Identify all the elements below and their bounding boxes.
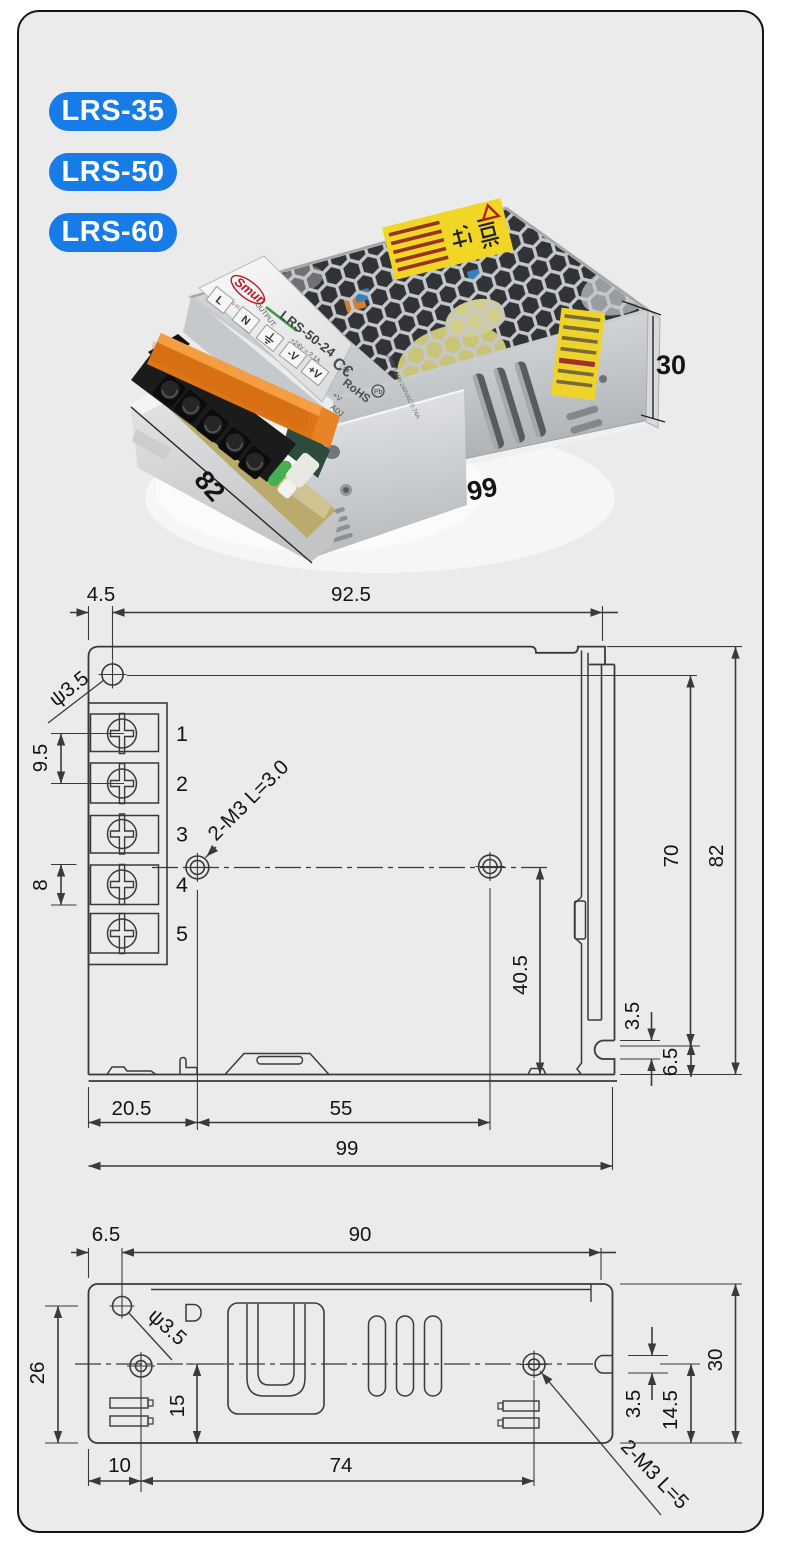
svg-text:20.5: 20.5 bbox=[112, 1097, 152, 1120]
svg-text:5: 5 bbox=[176, 922, 188, 946]
svg-text:74: 74 bbox=[330, 1454, 353, 1477]
svg-text:99: 99 bbox=[465, 472, 500, 507]
svg-text:10: 10 bbox=[108, 1454, 131, 1477]
svg-text:4: 4 bbox=[176, 873, 188, 897]
svg-text:4.5: 4.5 bbox=[87, 583, 116, 606]
svg-text:9.5: 9.5 bbox=[29, 744, 52, 773]
svg-text:ψ3.5: ψ3.5 bbox=[144, 1304, 191, 1350]
svg-text:1: 1 bbox=[176, 722, 188, 746]
svg-text:2-M3 L=3.0: 2-M3 L=3.0 bbox=[203, 755, 293, 845]
svg-text:15: 15 bbox=[166, 1395, 189, 1418]
svg-text:Pb: Pb bbox=[374, 389, 383, 396]
svg-text:82: 82 bbox=[705, 845, 728, 868]
svg-text:99: 99 bbox=[336, 1137, 359, 1160]
svg-text:90: 90 bbox=[349, 1223, 372, 1246]
svg-text:14.5: 14.5 bbox=[659, 1390, 682, 1430]
svg-text:2: 2 bbox=[176, 772, 188, 796]
svg-text:92.5: 92.5 bbox=[331, 583, 371, 606]
svg-text:40.5: 40.5 bbox=[509, 955, 532, 995]
svg-text:70: 70 bbox=[660, 845, 683, 868]
svg-text:3.5: 3.5 bbox=[622, 1390, 645, 1419]
svg-text:30: 30 bbox=[704, 1349, 727, 1372]
svg-text:ψ3.5: ψ3.5 bbox=[45, 667, 93, 712]
svg-text:30: 30 bbox=[656, 350, 686, 380]
svg-text:3.5: 3.5 bbox=[621, 1002, 644, 1031]
svg-text:6.5: 6.5 bbox=[659, 1048, 682, 1077]
svg-text:8: 8 bbox=[29, 879, 52, 890]
svg-text:55: 55 bbox=[330, 1097, 353, 1120]
svg-text:3: 3 bbox=[176, 823, 188, 847]
svg-text:26: 26 bbox=[26, 1362, 49, 1385]
svg-text:6.5: 6.5 bbox=[92, 1223, 121, 1246]
